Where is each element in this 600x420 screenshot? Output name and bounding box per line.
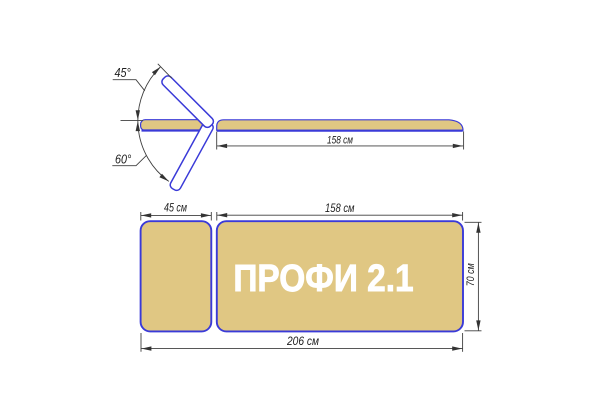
- svg-text:45 см: 45 см: [164, 203, 187, 215]
- svg-text:206 см: 206 см: [286, 336, 319, 348]
- svg-text:ПРОФИ 2.1: ПРОФИ 2.1: [233, 257, 413, 299]
- svg-text:60°: 60°: [115, 151, 131, 166]
- svg-text:158 см: 158 см: [325, 203, 355, 215]
- svg-text:158 см: 158 см: [327, 135, 353, 147]
- svg-text:70 см: 70 см: [465, 263, 477, 286]
- svg-text:45°: 45°: [115, 65, 131, 80]
